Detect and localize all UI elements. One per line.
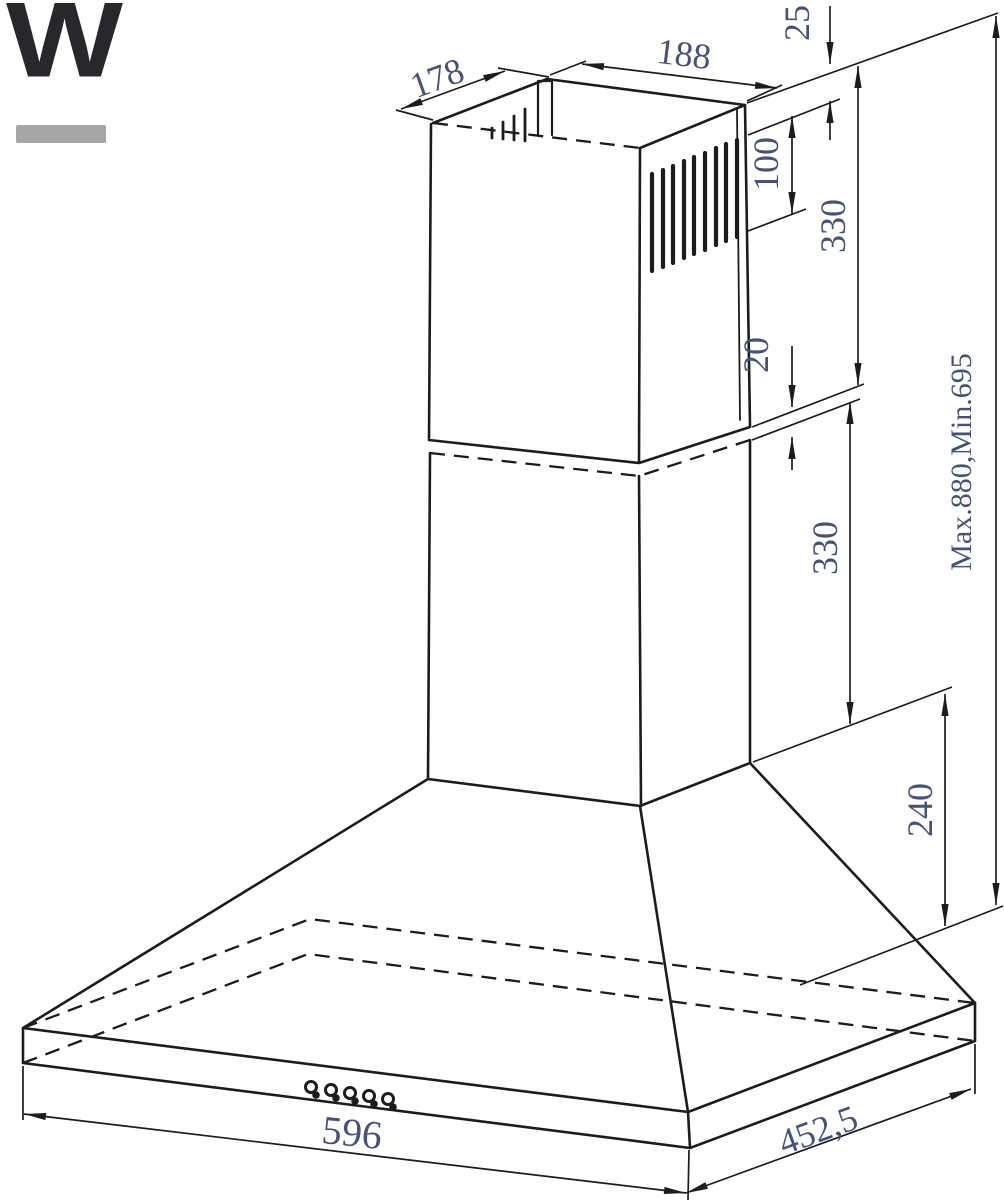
dimension-labels: 178 188 25 100 330 20 330 Max.880,Min.69… xyxy=(320,5,978,1163)
hidden-edges-dashed xyxy=(23,123,975,1063)
chimney-inner-corner-tab xyxy=(538,81,552,135)
canopy-outline xyxy=(23,763,975,1112)
control-button xyxy=(364,1091,378,1108)
dim-label-body-width: 596 xyxy=(320,1107,384,1158)
extension-lines xyxy=(23,13,1003,1200)
dim-label-lower-chimney: 330 xyxy=(805,521,845,575)
dim-label-rim-to-vent: 25 xyxy=(777,5,817,41)
chimney-lower-section xyxy=(428,440,750,806)
dim-label-duct-depth: 178 xyxy=(405,50,469,106)
vent-slats xyxy=(652,140,737,271)
chimney-upper-section xyxy=(429,79,750,463)
inner-vent-comb xyxy=(492,109,525,141)
dim-label-overlap: 20 xyxy=(736,337,776,373)
dim-label-body-depth: 452,5 xyxy=(773,1097,863,1162)
dim-label-overall-height: Max.880,Min.695 xyxy=(945,353,978,571)
technical-drawing: 178 188 25 100 330 20 330 Max.880,Min.69… xyxy=(0,0,1004,1200)
control-buttons xyxy=(306,1082,397,1111)
dim-label-upper-chimney: 330 xyxy=(813,199,853,253)
control-button xyxy=(326,1085,340,1102)
control-button xyxy=(345,1088,359,1105)
dimension-lines xyxy=(23,6,1003,1200)
dim-label-canopy-height: 240 xyxy=(900,783,940,837)
control-button xyxy=(306,1082,320,1099)
dim-label-vent-band: 100 xyxy=(746,137,786,191)
dim-label-duct-width: 188 xyxy=(655,31,713,77)
